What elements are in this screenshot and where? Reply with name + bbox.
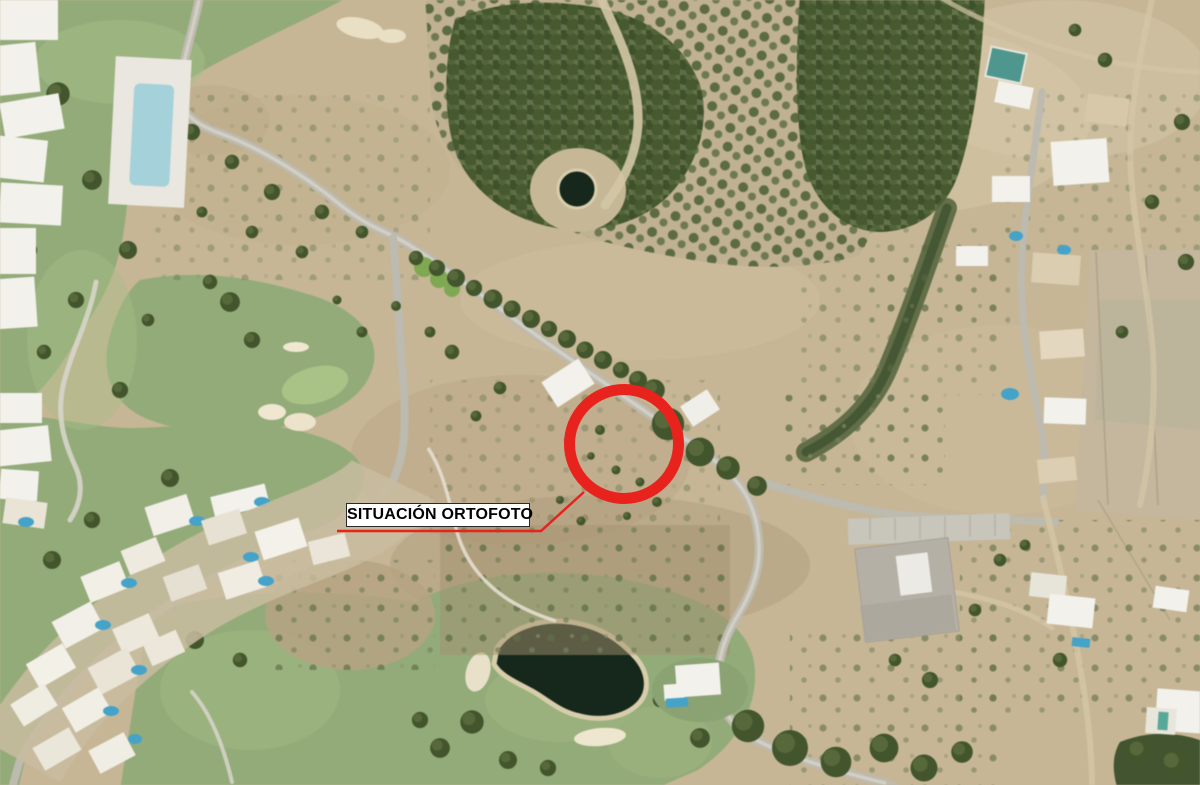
annotation-layer	[0, 0, 1200, 785]
orthophoto-map: SITUACIÓN ORTOFOTO	[0, 0, 1200, 785]
location-circle-annotation	[570, 390, 679, 499]
orthophoto-label: SITUACIÓN ORTOFOTO	[346, 503, 530, 527]
